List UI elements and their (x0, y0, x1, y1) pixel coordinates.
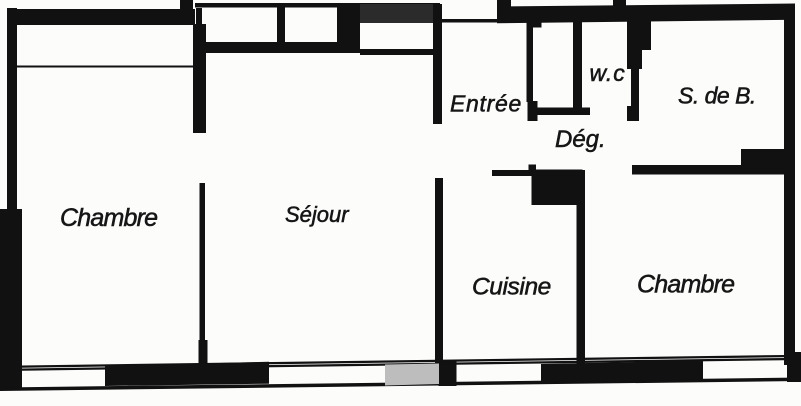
svg-text:Cuisine: Cuisine (472, 274, 551, 301)
svg-text:Chambre: Chambre (60, 204, 157, 232)
svg-text:Dég.: Dég. (555, 126, 606, 153)
svg-text:Chambre: Chambre (637, 271, 734, 299)
svg-text:Entrée: Entrée (450, 91, 522, 117)
svg-text:w.c: w.c (590, 60, 626, 86)
svg-text:S. de B.: S. de B. (678, 83, 756, 109)
svg-text:Séjour: Séjour (285, 202, 350, 227)
